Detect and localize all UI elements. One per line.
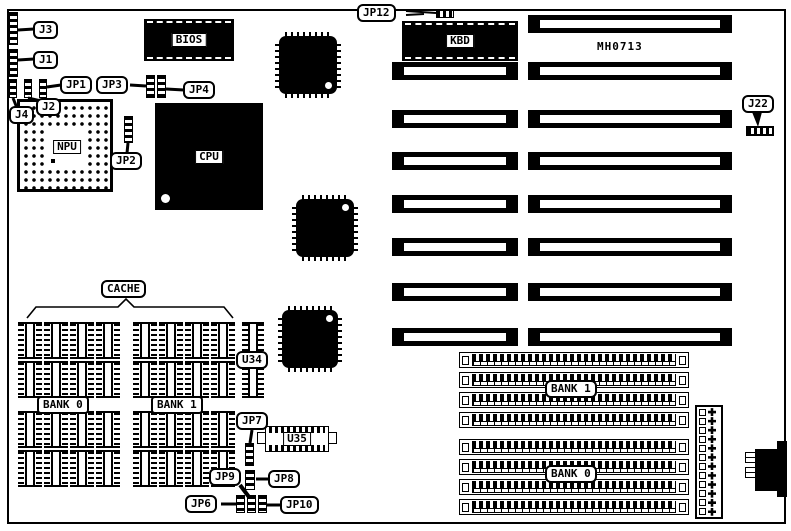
simm-latch-left [462, 356, 469, 365]
simm-latch-right [679, 463, 686, 472]
cache-socket-pins [203, 363, 209, 396]
simm-latch-right [679, 356, 686, 365]
cache-socket-pins [151, 324, 157, 357]
power-pin-hole [699, 427, 706, 434]
kbd-chip: KBD [402, 21, 518, 61]
cache-socket-bank0 [18, 450, 42, 487]
cache-socket-cavity [76, 363, 88, 396]
isa-slot-opening [540, 333, 720, 341]
cache-socket-slot [218, 363, 228, 396]
simm-chips-strip [472, 414, 676, 421]
isa-slot-segment-short [392, 152, 518, 170]
isa-slot-opening [404, 67, 506, 75]
cache-socket-pins [36, 413, 42, 446]
cache-socket-cavity [217, 363, 229, 396]
cache-socket-cavity [76, 324, 88, 357]
power-pin-cross [708, 499, 716, 507]
isa-slot-segment-long [528, 110, 732, 128]
cache-socket-pins [88, 413, 94, 446]
cache-socket-bank0 [44, 361, 68, 398]
cache-socket-bank1 [133, 322, 157, 359]
cache-socket-pins [114, 363, 120, 396]
simm-latch-left [462, 483, 469, 492]
simm-chips-strip [472, 354, 676, 361]
cache-socket-bank1 [185, 322, 209, 359]
label-jp9: JP9 [209, 468, 241, 486]
label-jp7: JP7 [236, 412, 268, 430]
isa-slot-opening [404, 243, 506, 251]
cache-socket-slot [192, 452, 202, 485]
cache-socket-bank0 [18, 361, 42, 398]
qfp-chip-3-pin1-dot [326, 315, 333, 322]
cache-socket-pins [88, 324, 94, 357]
power-pin-cross [708, 508, 716, 516]
simm-latch-right [679, 376, 686, 385]
label-j2: J2 [36, 98, 61, 116]
cache-socket-cavity [50, 452, 62, 485]
power-pin-row [697, 417, 721, 425]
simm-contacts-strip [472, 508, 676, 513]
cache-socket-pins [177, 452, 183, 485]
power-pin-hole [699, 409, 706, 416]
power-pin-row [697, 490, 721, 498]
keyboard-connector-body [755, 449, 779, 491]
label-j4: J4 [9, 106, 34, 124]
power-pin-row [697, 472, 721, 480]
cache-socket-pins [88, 452, 94, 485]
simm-latch-left [462, 503, 469, 512]
cache-socket-pins [177, 324, 183, 357]
simm-contacts-strip [472, 421, 676, 426]
qfp-chip-2-pin1-dot [342, 204, 349, 211]
power-pin-hole [699, 445, 706, 452]
cache-socket-bank0 [70, 450, 94, 487]
label-u34: U34 [236, 351, 268, 369]
simm-socket [459, 412, 689, 428]
cache-socket-pins [114, 452, 120, 485]
cache-socket-bank1 [159, 411, 183, 448]
power-pin-row [697, 508, 721, 516]
cache-socket-slot [51, 324, 61, 357]
jumper-j2 [24, 79, 32, 98]
power-pin-hole [699, 454, 706, 461]
cache-socket-slot [51, 363, 61, 396]
u35-right-pad [328, 432, 337, 444]
cache-socket-pins [177, 363, 183, 396]
power-pin-cross [708, 444, 716, 452]
isa-slot-segment-long [528, 283, 732, 301]
simm-socket [459, 439, 689, 455]
cache-socket-cavity [165, 413, 177, 446]
label-j3: J3 [33, 21, 58, 39]
cache-socket-pins [151, 413, 157, 446]
isa-slot-opening [404, 115, 506, 123]
label-j22: J22 [742, 95, 774, 113]
cache-socket-bank0 [96, 450, 120, 487]
isa-slot-opening [540, 243, 720, 251]
qfp-chip-1-pin1-dot [325, 82, 332, 89]
cache-socket-pins [229, 324, 235, 357]
isa-slot-opening [404, 157, 506, 165]
label-cache: CACHE [101, 280, 146, 298]
power-pin-cross [708, 472, 716, 480]
cache-socket-slot [140, 413, 150, 446]
cache-socket-pins [229, 363, 235, 396]
power-pin-row [697, 462, 721, 470]
keyboard-connector-pad-1 [745, 452, 756, 463]
jumper-jp12 [436, 10, 454, 18]
simm-contacts-strip [472, 448, 676, 453]
cache-socket-slot [166, 452, 176, 485]
qfp-chip-3 [278, 306, 342, 372]
isa-slot-segment-long [528, 15, 732, 33]
cache-socket-pins [62, 452, 68, 485]
label-cache-bank1: BANK 1 [151, 396, 203, 414]
isa-slot-segment-long [528, 328, 732, 346]
cache-socket-cavity [191, 413, 203, 446]
power-pin-hole [699, 508, 706, 515]
cache-socket-slot [77, 452, 87, 485]
simm-latch-right [679, 483, 686, 492]
simm-latch-left [462, 376, 469, 385]
connector-j22 [746, 126, 774, 136]
cache-socket-bank1 [133, 411, 157, 448]
cache-socket-cavity [24, 413, 36, 446]
power-pin-cross [708, 481, 716, 489]
cache-socket-bank1 [159, 322, 183, 359]
cache-socket-cavity [102, 363, 114, 396]
jumper-j4 [9, 79, 17, 98]
cache-socket-pins [88, 363, 94, 396]
cache-socket-bank0 [96, 322, 120, 359]
isa-slot-segment-short [392, 328, 518, 346]
cache-socket-bank1 [185, 411, 209, 448]
cache-socket-pins [62, 413, 68, 446]
isa-slot-opening [540, 67, 720, 75]
jumper-jp7 [245, 443, 254, 466]
cache-socket-bank0 [44, 450, 68, 487]
cache-socket-slot [140, 324, 150, 357]
simm-latch-left [462, 396, 469, 405]
simm-contacts-strip [472, 361, 676, 366]
power-pin-cross [708, 462, 716, 470]
qfp-chip-2 [292, 195, 358, 261]
cpu-label: CPU [195, 150, 223, 164]
label-cache-bank0: BANK 0 [37, 396, 89, 414]
cache-socket-cavity [139, 413, 151, 446]
cache-socket-bank1 [159, 450, 183, 487]
cache-socket-pins [114, 413, 120, 446]
connector-j1 [9, 49, 18, 77]
cache-socket-bank1 [211, 361, 235, 398]
cache-socket-slot [25, 363, 35, 396]
cache-socket-slot [25, 324, 35, 357]
cache-socket-bank1 [159, 361, 183, 398]
power-pin-hole [699, 490, 706, 497]
cache-socket-cavity [50, 363, 62, 396]
cache-socket-bank1 [185, 361, 209, 398]
cache-socket-bank0 [18, 322, 42, 359]
simm-latch-right [679, 416, 686, 425]
simm-socket [459, 499, 689, 515]
npu-socket-cavity: NPU [46, 126, 88, 168]
power-pin-cross [708, 435, 716, 443]
cache-socket-slot [25, 413, 35, 446]
cache-socket-bank0 [70, 322, 94, 359]
simm-latch-left [462, 443, 469, 452]
cache-socket-cavity [139, 363, 151, 396]
jumper-jp3 [146, 75, 155, 98]
bios-chip: BIOS [144, 19, 234, 61]
label-jp1: JP1 [60, 76, 92, 94]
cache-socket-cavity [217, 324, 229, 357]
cache-socket-cavity [139, 452, 151, 485]
cache-socket-cavity [102, 324, 114, 357]
label-memory-bank0: BANK 0 [545, 465, 597, 483]
jumper-jp2 [124, 116, 133, 143]
cache-socket-pins [62, 363, 68, 396]
cache-socket-cavity [50, 413, 62, 446]
simm-latch-right [679, 396, 686, 405]
npu-pin1-marker [51, 159, 55, 163]
motherboard-diagram: NPU BIOS CPU KBD MH0713 U [0, 0, 791, 531]
label-jp4: JP4 [183, 81, 215, 99]
kbd-label: KBD [446, 34, 474, 48]
isa-slot-segment-long [528, 62, 732, 80]
cache-socket-slot [192, 363, 202, 396]
jumper-jp8-jp9 [245, 470, 255, 490]
cache-socket-bank0 [96, 411, 120, 448]
cache-socket-cavity [102, 413, 114, 446]
jumper-jp10 [258, 495, 267, 513]
qfp-chip-1 [275, 32, 341, 98]
cache-socket-cavity [165, 363, 177, 396]
cache-socket-cavity [102, 452, 114, 485]
cache-socket-bank0 [44, 322, 68, 359]
isa-slot-segment-long [528, 238, 732, 256]
power-pin-row [697, 481, 721, 489]
isa-slot-opening [404, 288, 506, 296]
npu-label: NPU [53, 140, 81, 154]
simm-latch-left [462, 416, 469, 425]
cache-socket-cavity [24, 363, 36, 396]
cache-socket-pins [36, 452, 42, 485]
cache-socket-cavity [76, 413, 88, 446]
cache-socket-slot [77, 363, 87, 396]
bios-label: BIOS [172, 33, 207, 47]
simm-contacts-strip [472, 401, 676, 406]
isa-slot-opening [404, 333, 506, 341]
isa-slot-segment-short [392, 195, 518, 213]
isa-slot-segment-short [392, 283, 518, 301]
cache-socket-cavity [50, 324, 62, 357]
cache-socket-bank1 [185, 450, 209, 487]
cache-socket-slot [192, 324, 202, 357]
cache-socket-slot [218, 324, 228, 357]
cache-socket-cavity [139, 324, 151, 357]
power-pin-cross [708, 426, 716, 434]
cache-socket-cavity [191, 452, 203, 485]
label-jp12: JP12 [357, 4, 396, 22]
label-j1: J1 [33, 51, 58, 69]
cpu-chip: CPU [155, 103, 263, 210]
connector-j3 [9, 12, 18, 45]
power-connector [695, 405, 723, 519]
cache-socket-slot [51, 413, 61, 446]
power-pin-hole [699, 499, 706, 506]
simm-latch-right [679, 443, 686, 452]
cache-socket-cavity [24, 452, 36, 485]
simm-socket [459, 352, 689, 368]
cache-socket-bank0 [70, 411, 94, 448]
power-pin-cross [708, 453, 716, 461]
isa-slot-opening [540, 115, 720, 123]
cache-socket-slot [103, 324, 113, 357]
power-pin-row [697, 435, 721, 443]
cache-socket-pins [203, 413, 209, 446]
cache-socket-bank1 [211, 411, 235, 448]
cache-socket-pins [177, 413, 183, 446]
cache-socket-pins [36, 324, 42, 357]
cache-socket-slot [51, 452, 61, 485]
power-pin-row [697, 408, 721, 416]
cache-socket-bank1 [133, 361, 157, 398]
power-pin-row [697, 453, 721, 461]
power-pin-hole [699, 463, 706, 470]
power-pin-hole [699, 436, 706, 443]
power-pin-hole [699, 418, 706, 425]
cache-socket-bank1 [211, 322, 235, 359]
label-jp3: JP3 [96, 76, 128, 94]
cache-socket-slot [140, 363, 150, 396]
board-model-text: MH0713 [597, 40, 643, 53]
isa-slot-opening [540, 20, 720, 28]
simm-chips-strip [472, 501, 676, 508]
power-pin-cross [708, 417, 716, 425]
cache-socket-cavity [165, 452, 177, 485]
cache-socket-slot [103, 363, 113, 396]
jumper-jp4 [157, 75, 166, 98]
cache-socket-slot [77, 413, 87, 446]
cache-socket-slot [140, 452, 150, 485]
power-pin-row [697, 499, 721, 507]
isa-slot-segment-long [528, 195, 732, 213]
cache-socket-cavity [76, 452, 88, 485]
isa-slot-segment-long [528, 152, 732, 170]
isa-slot-segment-short [392, 110, 518, 128]
cache-socket-bank1 [133, 450, 157, 487]
cache-socket-slot [103, 413, 113, 446]
cache-socket-cavity [191, 324, 203, 357]
cpu-pin1-dot [161, 194, 170, 203]
isa-slot-segment-short [392, 238, 518, 256]
label-jp8: JP8 [268, 470, 300, 488]
cache-socket-pins [151, 363, 157, 396]
cache-socket-cavity [217, 413, 229, 446]
cache-socket-slot [103, 452, 113, 485]
cache-socket-slot [77, 324, 87, 357]
simm-contacts-strip [472, 488, 676, 493]
power-pin-hole [699, 481, 706, 488]
cache-socket-cavity [165, 324, 177, 357]
cache-socket-slot [166, 363, 176, 396]
cache-socket-cavity [191, 363, 203, 396]
simm-chips-strip [472, 441, 676, 448]
cache-socket-pins [203, 324, 209, 357]
isa-slot-opening [540, 157, 720, 165]
jumper-jp1 [39, 79, 47, 98]
cache-socket-bank0 [18, 411, 42, 448]
isa-slot-opening [540, 288, 720, 296]
cache-socket-cavity [24, 324, 36, 357]
cache-socket-pins [114, 324, 120, 357]
simm-latch-left [462, 463, 469, 472]
power-pin-row [697, 444, 721, 452]
label-jp2: JP2 [110, 152, 142, 170]
cache-socket-slot [218, 413, 228, 446]
cache-socket-bank0 [44, 411, 68, 448]
cache-socket-pins [229, 413, 235, 446]
isa-slot-opening [404, 200, 506, 208]
power-pin-cross [708, 490, 716, 498]
cache-socket-pins [36, 363, 42, 396]
simm-latch-right [679, 503, 686, 512]
power-pin-row [697, 426, 721, 434]
keyboard-connector-pad-2 [745, 467, 756, 478]
cache-socket-bank0 [96, 361, 120, 398]
u35-label: U35 [283, 432, 311, 446]
cache-socket-slot [166, 413, 176, 446]
cache-socket-pins [151, 452, 157, 485]
cache-socket-bank0 [70, 361, 94, 398]
cache-socket-slot [166, 324, 176, 357]
label-jp6: JP6 [185, 495, 217, 513]
isa-slot-opening [540, 200, 720, 208]
u35-left-pad [257, 432, 266, 444]
label-jp10: JP10 [280, 496, 319, 514]
label-memory-bank1: BANK 1 [545, 380, 597, 398]
power-pin-cross [708, 408, 716, 416]
power-pin-hole [699, 472, 706, 479]
u35-socket: U35 [265, 426, 329, 452]
jumper-jp6 [236, 495, 245, 513]
cache-socket-slot [192, 413, 202, 446]
cache-socket-pins [62, 324, 68, 357]
isa-slot-segment-short [392, 62, 518, 80]
jumper-mid [247, 495, 256, 513]
cache-socket-slot [25, 452, 35, 485]
